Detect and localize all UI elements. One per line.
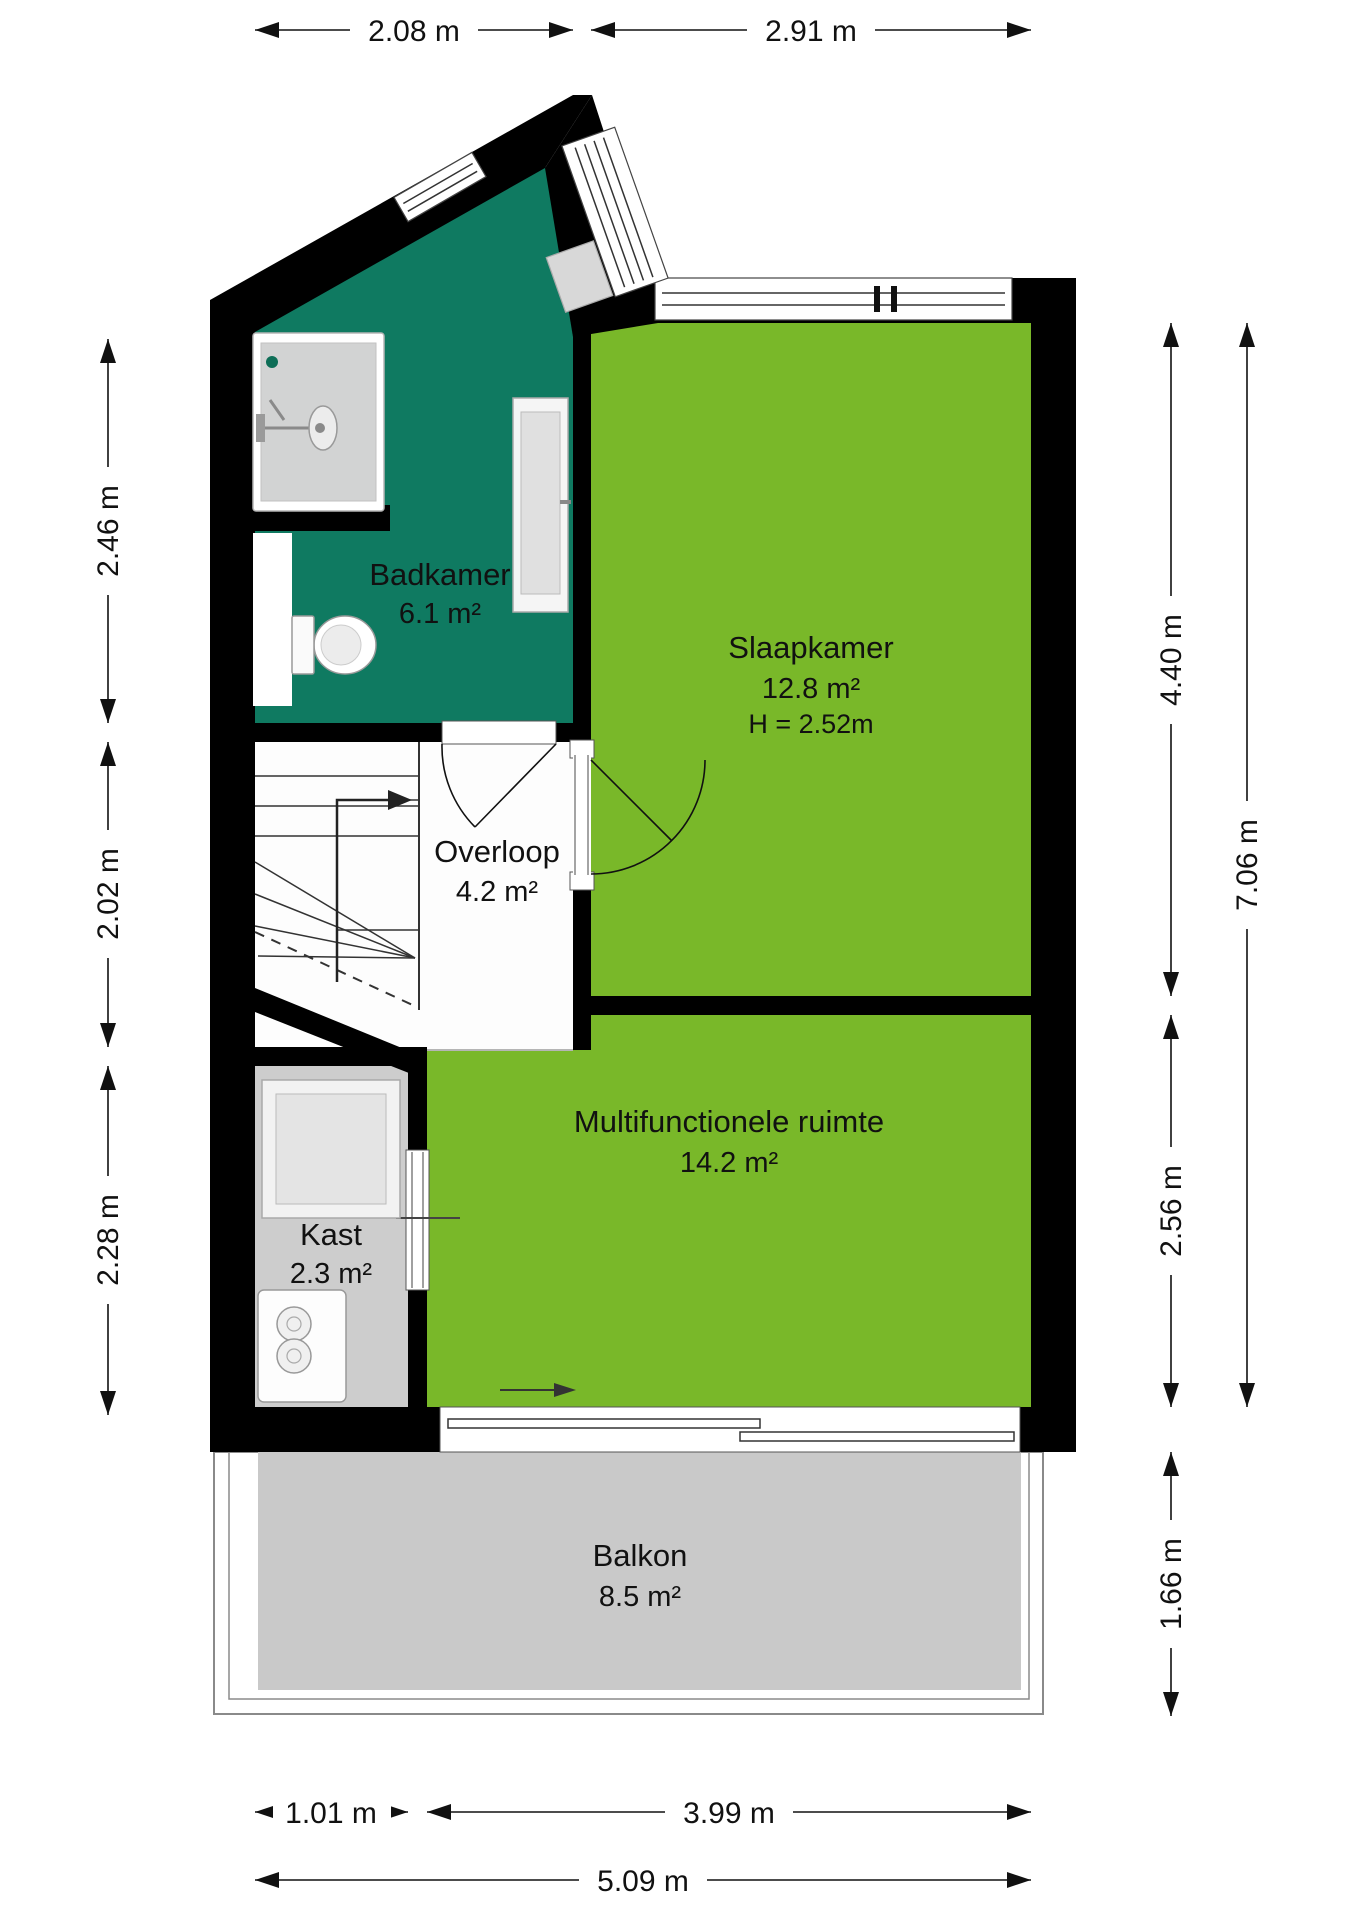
overloop-label: Overloop <box>434 834 560 869</box>
dim-bottom-2: 3.99 m <box>427 1792 1031 1832</box>
dim-left-3: 2.28 m <box>88 1066 128 1415</box>
badkamer-area: 6.1 m² <box>399 598 482 630</box>
shower-drain <box>266 356 278 368</box>
kast-area: 2.3 m² <box>290 1258 373 1290</box>
dim-right-4: 7.06 m <box>1227 323 1267 1407</box>
wall-right <box>1031 278 1076 1452</box>
svg-text:2.08 m: 2.08 m <box>368 15 460 48</box>
svg-text:2.28 m: 2.28 m <box>92 1194 125 1286</box>
svg-text:2.46 m: 2.46 m <box>92 485 125 577</box>
wall-divider-lower <box>573 872 591 996</box>
overloop-area: 4.2 m² <box>456 876 539 908</box>
dim-right-2: 2.56 m <box>1151 1015 1191 1407</box>
floorplan-drawing: Badkamer 6.1 m² Slaapkamer 12.8 m² H = 2… <box>0 0 1358 1920</box>
shower <box>253 333 384 511</box>
wall-left <box>210 300 255 1452</box>
wall-slaap-mf <box>591 996 1031 1015</box>
slaapkamer-label: Slaapkamer <box>728 630 893 665</box>
svg-text:2.91 m: 2.91 m <box>765 15 857 48</box>
slaapkamer-window <box>655 278 1012 320</box>
svg-text:7.06 m: 7.06 m <box>1231 819 1264 911</box>
shower-bracket <box>256 414 265 442</box>
dim-bottom-1: 1.01 m <box>255 1792 408 1832</box>
dim-top-2: 2.91 m <box>591 10 1031 50</box>
dim-top-1: 2.08 m <box>255 10 573 50</box>
svg-text:2.56 m: 2.56 m <box>1155 1165 1188 1257</box>
svg-text:1.66 m: 1.66 m <box>1155 1538 1188 1630</box>
multifunctionele-floor <box>427 1015 1031 1407</box>
dim-left-2: 2.02 m <box>88 742 128 1047</box>
floorplan-page: Badkamer 6.1 m² Slaapkamer 12.8 m² H = 2… <box>0 0 1358 1920</box>
slaapkamer-height: H = 2.52m <box>748 709 873 739</box>
toilet <box>292 616 376 674</box>
multifunctionele-label: Multifunctionele ruimte <box>574 1104 884 1139</box>
dim-right-3: 1.66 m <box>1151 1452 1191 1716</box>
svg-text:4.40 m: 4.40 m <box>1155 614 1188 706</box>
dim-left-1: 2.46 m <box>88 339 128 723</box>
washing-machine <box>262 1080 400 1218</box>
svg-text:2.02 m: 2.02 m <box>92 848 125 940</box>
slaapkamer-area: 12.8 m² <box>762 673 861 705</box>
svg-text:1.01 m: 1.01 m <box>285 1797 377 1830</box>
svg-text:5.09 m: 5.09 m <box>597 1865 689 1898</box>
balkon-label: Balkon <box>593 1538 688 1573</box>
badkamer-label: Badkamer <box>369 557 510 592</box>
dim-right-1: 4.40 m <box>1151 323 1191 996</box>
dim-bottom-3: 5.09 m <box>255 1860 1031 1900</box>
toilet-tank <box>292 616 314 674</box>
svg-text:3.99 m: 3.99 m <box>683 1797 775 1830</box>
wall-divider-stub <box>573 996 591 1050</box>
multifunctionele-area: 14.2 m² <box>680 1147 779 1179</box>
kast-label: Kast <box>300 1217 362 1252</box>
wall-divider-upper <box>573 330 591 755</box>
badkamer-niche <box>253 533 292 706</box>
boiler <box>258 1290 346 1402</box>
balkon-area: 8.5 m² <box>599 1581 682 1613</box>
radiator <box>513 398 571 612</box>
